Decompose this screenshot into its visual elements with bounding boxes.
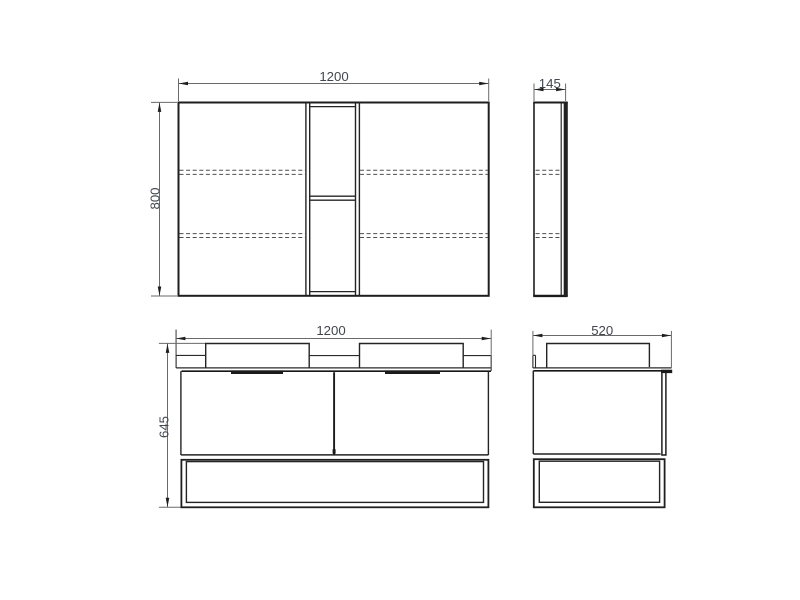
svg-text:1200: 1200 [316,323,345,338]
svg-text:645: 645 [157,416,172,438]
svg-text:145: 145 [539,76,561,91]
svg-text:520: 520 [591,323,613,338]
svg-text:1200: 1200 [319,69,348,84]
svg-text:800: 800 [148,187,163,209]
